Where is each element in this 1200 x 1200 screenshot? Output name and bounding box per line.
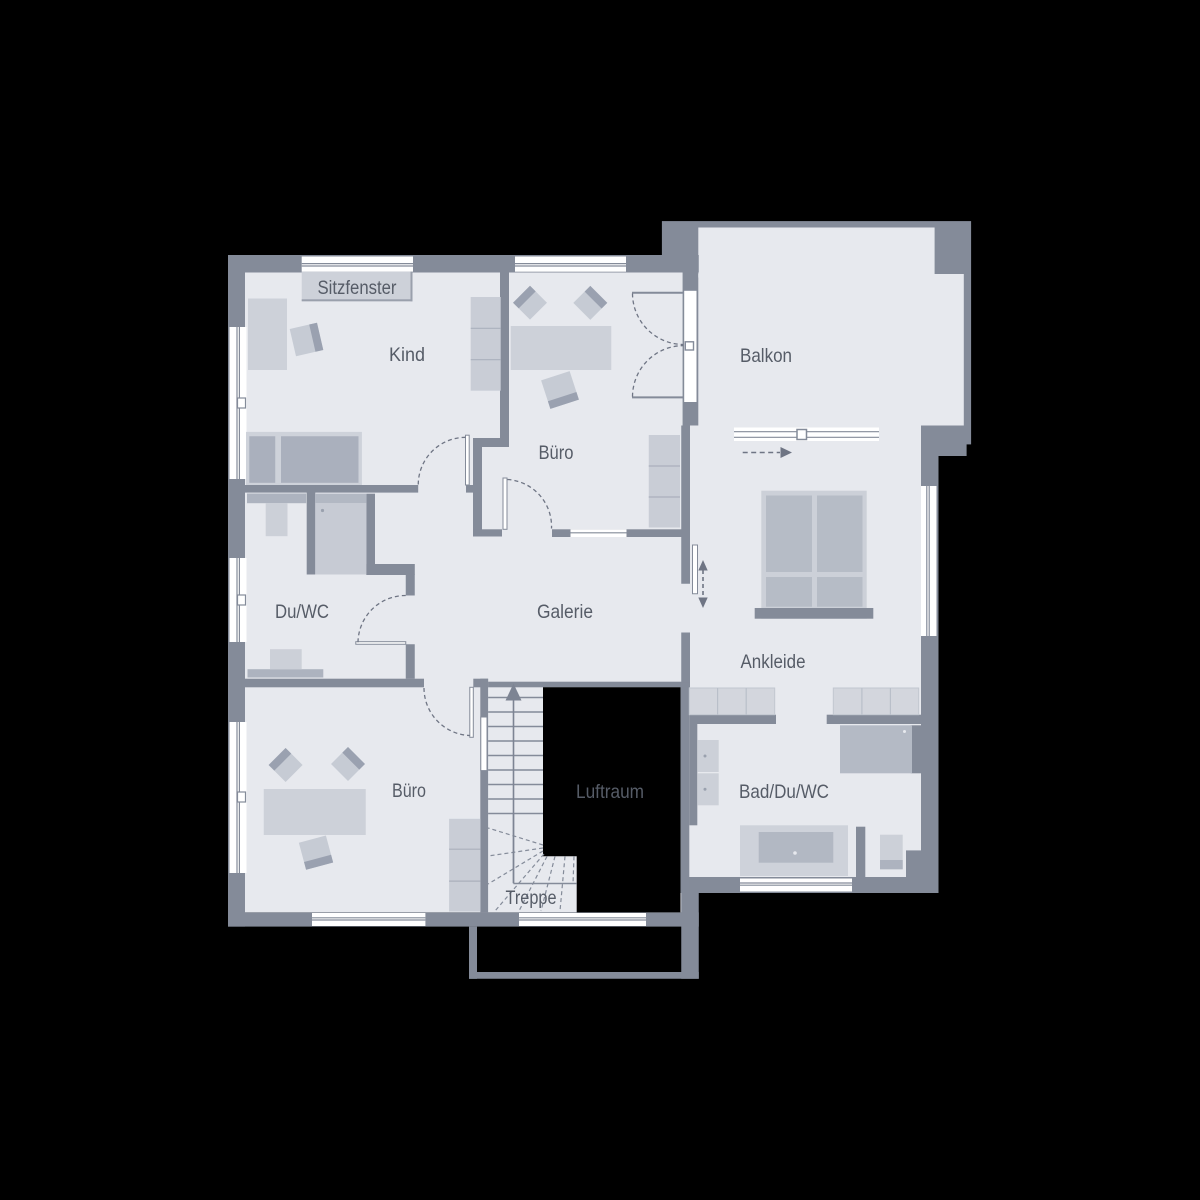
svg-text:Luftraum: Luftraum — [576, 781, 644, 803]
svg-text:Büro: Büro — [539, 442, 574, 464]
svg-text:Büro: Büro — [392, 780, 426, 802]
svg-text:Bad/Du/WC: Bad/Du/WC — [739, 781, 829, 803]
svg-text:Treppe: Treppe — [506, 887, 557, 909]
svg-text:Balkon: Balkon — [740, 345, 792, 367]
svg-text:Ankleide: Ankleide — [741, 651, 806, 673]
svg-text:Galerie: Galerie — [537, 601, 593, 623]
svg-text:Kind: Kind — [389, 344, 425, 366]
svg-text:Sitzfenster: Sitzfenster — [318, 277, 397, 299]
svg-text:Du/WC: Du/WC — [275, 601, 329, 623]
